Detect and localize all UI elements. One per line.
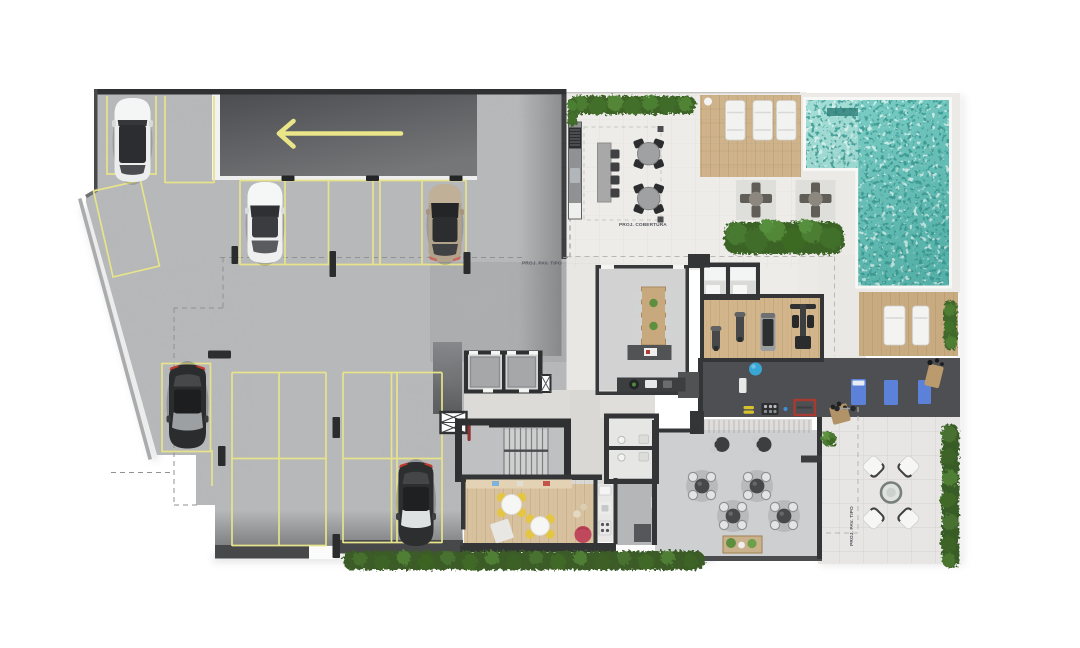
svg-text:PROJ. COBERTURA: PROJ. COBERTURA xyxy=(619,222,667,228)
svg-text:PROJ. PAV. TIPO: PROJ. PAV. TIPO xyxy=(849,506,855,546)
svg-text:PROJ. PAV. TIPO: PROJ. PAV. TIPO xyxy=(522,261,562,267)
